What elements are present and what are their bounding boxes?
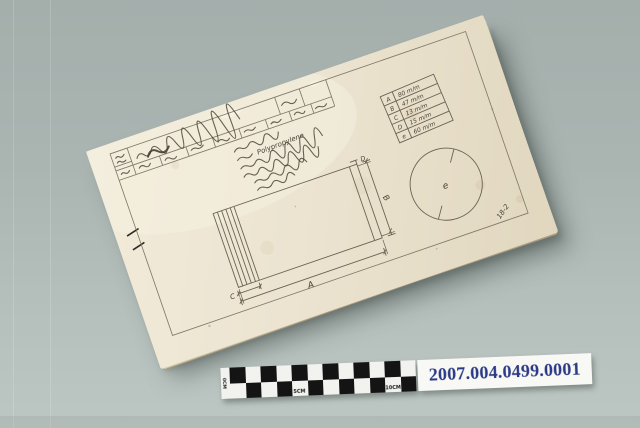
dimension-table: A 80 m/m B 47 m/m C 13 m/m D 15 m/m e 60… [380,74,453,143]
scale-strip: 0CM 5CM 10CM 2007.004.0499.0001 [220,353,592,399]
photo-canvas: { "scene": { "background_color": "#aab4b… [0,0,640,428]
dim-label-a: A [305,280,315,292]
scale-square [230,383,246,399]
paper-texture [86,15,531,357]
scale-square [322,363,338,379]
scale-square [229,367,245,383]
scale-square [323,379,339,395]
document-booklet: Polypropylene A 80 m/m B 47 m/m C [86,15,558,369]
dim-table-label: e [401,133,407,141]
dim-label-e: e [441,181,450,192]
backdrop-seam [50,0,51,428]
page-artwork: Polypropylene A 80 m/m B 47 m/m C [86,15,558,369]
backdrop-shade [0,416,640,428]
scale-label-10cm: 10CM [385,385,401,392]
scale-square [307,379,323,395]
scale-square [400,376,416,392]
accession-number: 2007.004.0499.0001 [428,359,581,386]
backdrop-seam [13,0,14,428]
scale-square [369,361,385,377]
dim-label-c: C [229,292,236,301]
accession-label: 2007.004.0499.0001 [417,353,592,391]
scale-square [276,381,292,397]
dim-label-d: D [359,154,366,163]
page-annotation: 18-2 [495,202,511,220]
scale-square [338,378,354,394]
scale-square [276,365,292,381]
scale-square [400,360,416,376]
scale-square [261,381,277,397]
scale-square [307,364,323,380]
scale-square [291,365,307,381]
scale-square [353,362,369,378]
scale-square [369,377,385,393]
scale-square [384,361,400,377]
scale-checker: 5CM 10CM [229,360,416,398]
scale-label-5cm: 5CM [293,389,305,395]
scale-label-0cm: 0CM [221,378,226,389]
dim-table-label: B [389,105,396,113]
document-page: Polypropylene A 80 m/m B 47 m/m C [86,15,558,369]
scale-square [245,366,261,382]
scale-square [354,378,370,394]
dim-label-b: B [381,193,391,203]
scale-square [260,366,276,382]
scale-square [245,382,261,398]
scale-square [338,363,354,379]
